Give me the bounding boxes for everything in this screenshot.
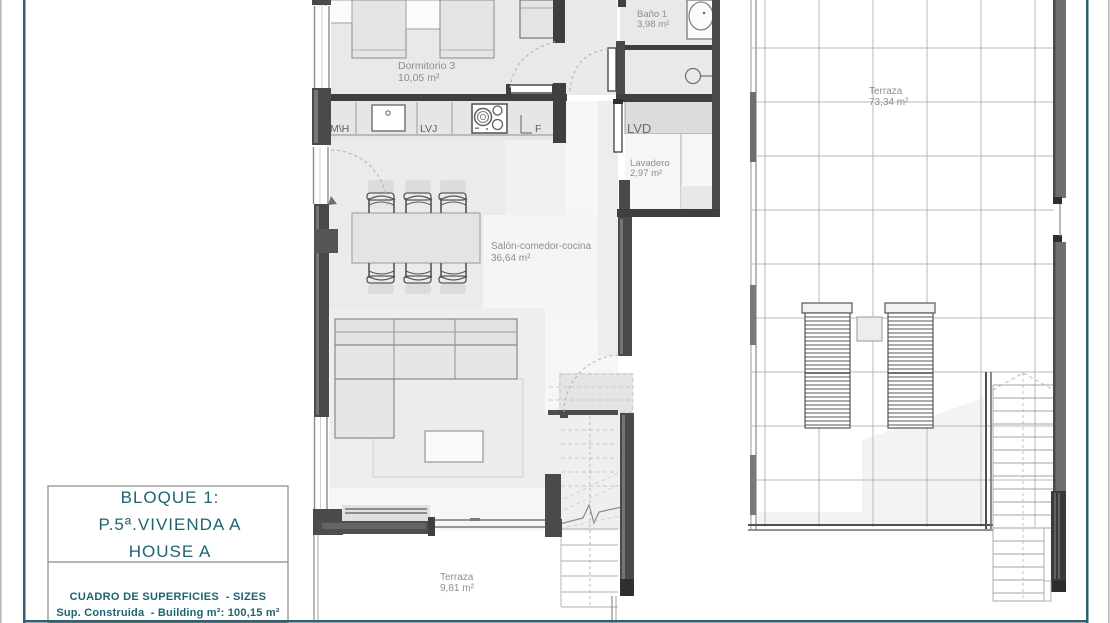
svg-text:36,64 m²: 36,64 m² <box>491 253 531 264</box>
svg-text:F: F <box>535 123 541 135</box>
svg-text:P.5ª.VIVIENDA A: P.5ª.VIVIENDA A <box>99 515 242 534</box>
svg-text:9,81 m²: 9,81 m² <box>440 583 475 594</box>
svg-text:LVD: LVD <box>627 121 651 136</box>
svg-text:3,98 m²: 3,98 m² <box>637 19 669 30</box>
svg-text:Terraza: Terraza <box>869 86 903 97</box>
svg-text:73,34 m²: 73,34 m² <box>869 97 909 108</box>
svg-text:Salón-comedor-cocina: Salón-comedor-cocina <box>491 241 591 252</box>
svg-text:BLOQUE 1:: BLOQUE 1: <box>121 488 220 507</box>
svg-text:Sup. Construida - Building m²: Sup. Construida - Building m²: 100,15 m² <box>56 607 279 619</box>
svg-text:LVJ: LVJ <box>420 123 437 135</box>
svg-text:HOUSE A: HOUSE A <box>129 542 212 561</box>
svg-text:10,05 m²: 10,05 m² <box>398 72 440 84</box>
svg-text:M\H: M\H <box>330 123 349 135</box>
svg-text:2,97 m²: 2,97 m² <box>630 168 662 179</box>
svg-text:CUADRO DE SUPERFICIES - SIZES: CUADRO DE SUPERFICIES - SIZES <box>70 591 267 603</box>
svg-text:Terraza: Terraza <box>440 572 474 583</box>
svg-text:Dormitorio 3: Dormitorio 3 <box>398 60 455 72</box>
